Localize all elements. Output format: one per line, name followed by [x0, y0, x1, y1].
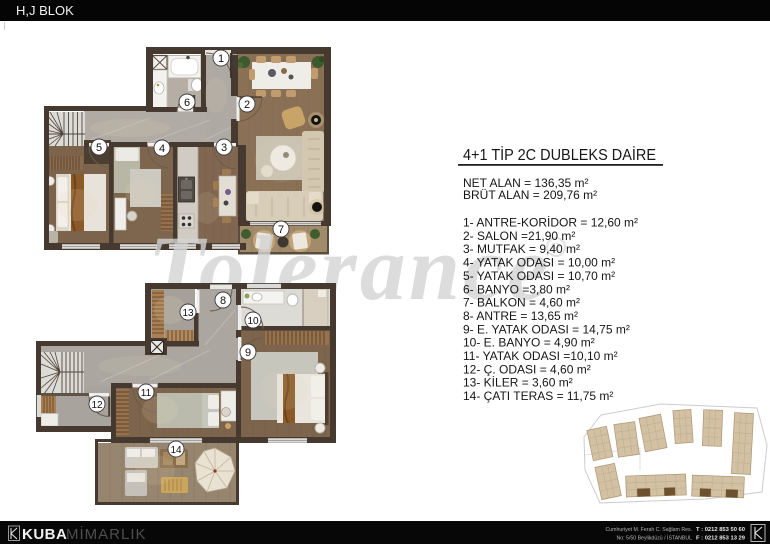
svg-text:9- E. YATAK ODASI = 14,75 m²: 9- E. YATAK ODASI = 14,75 m²: [463, 322, 630, 336]
svg-text:8- ANTRE = 13,65 m²: 8- ANTRE = 13,65 m²: [463, 309, 578, 323]
svg-text:1- ANTRE-KORİDOR = 12,60 m²: 1- ANTRE-KORİDOR = 12,60 m²: [463, 216, 638, 230]
svg-text:13: 13: [182, 308, 194, 319]
svg-text:10: 10: [247, 316, 259, 327]
svg-text:11: 11: [141, 388, 152, 399]
svg-text:F : 0212 853 13 29: F : 0212 853 13 29: [696, 536, 746, 542]
svg-text:Cumhuriyet M. Ferah C. Sağlam: Cumhuriyet M. Ferah C. Sağlam Res.: [606, 527, 693, 533]
svg-text:6: 6: [184, 97, 190, 109]
svg-text:8: 8: [220, 295, 226, 307]
svg-text:H,J BLOK: H,J BLOK: [16, 3, 74, 18]
svg-text:13- KİLER = 3,60 m²: 13- KİLER = 3,60 m²: [463, 376, 573, 390]
svg-text:6- BANYO =3,80 m²: 6- BANYO =3,80 m²: [463, 282, 570, 296]
svg-text:2: 2: [244, 99, 250, 111]
svg-text:10- E. BANYO = 4,90 m²: 10- E. BANYO = 4,90 m²: [463, 336, 595, 350]
svg-text:MİMARLIK: MİMARLIK: [66, 525, 147, 543]
svg-text:BRÜT ALAN = 209,76 m²: BRÜT ALAN = 209,76 m²: [463, 188, 597, 202]
svg-text:12- Ç. ODASI = 4,60 m²: 12- Ç. ODASI = 4,60 m²: [463, 362, 591, 376]
svg-text:11- YATAK ODASI =10,10 m²: 11- YATAK ODASI =10,10 m²: [463, 349, 618, 363]
svg-text:1: 1: [218, 53, 224, 65]
svg-text:T : 0212 853 50 60: T : 0212 853 50 60: [696, 527, 745, 533]
svg-text:5- YATAK ODASI = 10,70 m²: 5- YATAK ODASI = 10,70 m²: [463, 269, 615, 283]
svg-text:5: 5: [96, 142, 102, 154]
svg-text:12: 12: [91, 400, 103, 411]
svg-text:4: 4: [159, 143, 165, 155]
svg-text:3: 3: [221, 142, 227, 154]
svg-text:2- SALON =21,90 m²: 2- SALON =21,90 m²: [463, 229, 575, 243]
svg-text:4- YATAK ODASI = 10,00 m²: 4- YATAK ODASI = 10,00 m²: [463, 256, 615, 270]
svg-text:3- MUTFAK = 9,40 m²: 3- MUTFAK = 9,40 m²: [463, 242, 580, 256]
svg-text:7- BALKON = 4,60 m²: 7- BALKON = 4,60 m²: [463, 296, 580, 310]
svg-text:14- ÇATI TERAS = 11,75 m²: 14- ÇATI TERAS = 11,75 m²: [463, 389, 613, 403]
svg-text:4+1 TİP 2C DUBLEKS DAİRE: 4+1 TİP 2C DUBLEKS DAİRE: [463, 145, 656, 164]
svg-text:No: 5/50 Beylikdüzü / İSTANBU: No: 5/50 Beylikdüzü / İSTANBUL: [617, 535, 693, 542]
svg-text:KUBA: KUBA: [22, 526, 67, 543]
svg-text:14: 14: [170, 445, 182, 456]
svg-text:9: 9: [245, 347, 251, 359]
